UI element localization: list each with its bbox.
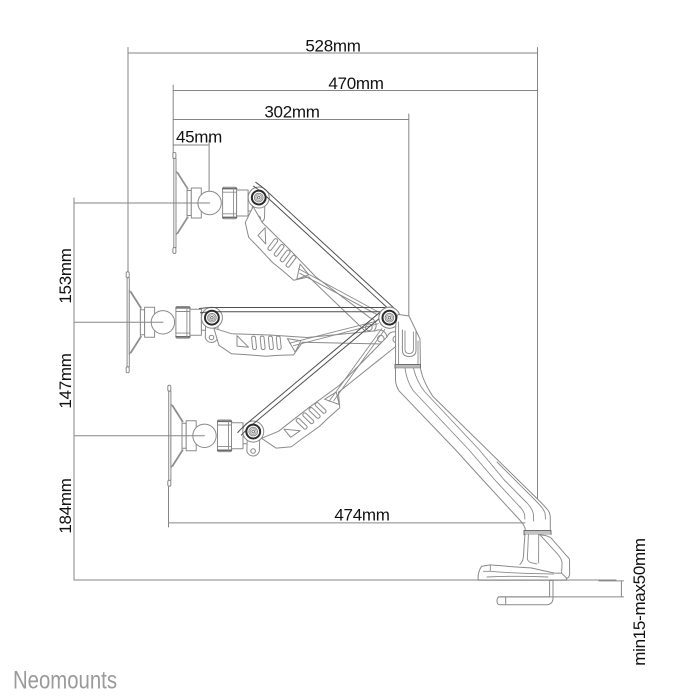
- svg-text:45mm: 45mm: [176, 128, 222, 147]
- svg-text:Neomounts: Neomounts: [13, 667, 117, 695]
- svg-text:528mm: 528mm: [305, 37, 360, 56]
- svg-text:147mm: 147mm: [56, 353, 75, 408]
- svg-text:153mm: 153mm: [56, 248, 75, 303]
- svg-text:470mm: 470mm: [328, 74, 383, 93]
- svg-text:302mm: 302mm: [264, 103, 319, 122]
- svg-text:min15-max50mm: min15-max50mm: [630, 538, 649, 666]
- svg-text:474mm: 474mm: [334, 506, 389, 525]
- svg-text:184mm: 184mm: [56, 478, 75, 533]
